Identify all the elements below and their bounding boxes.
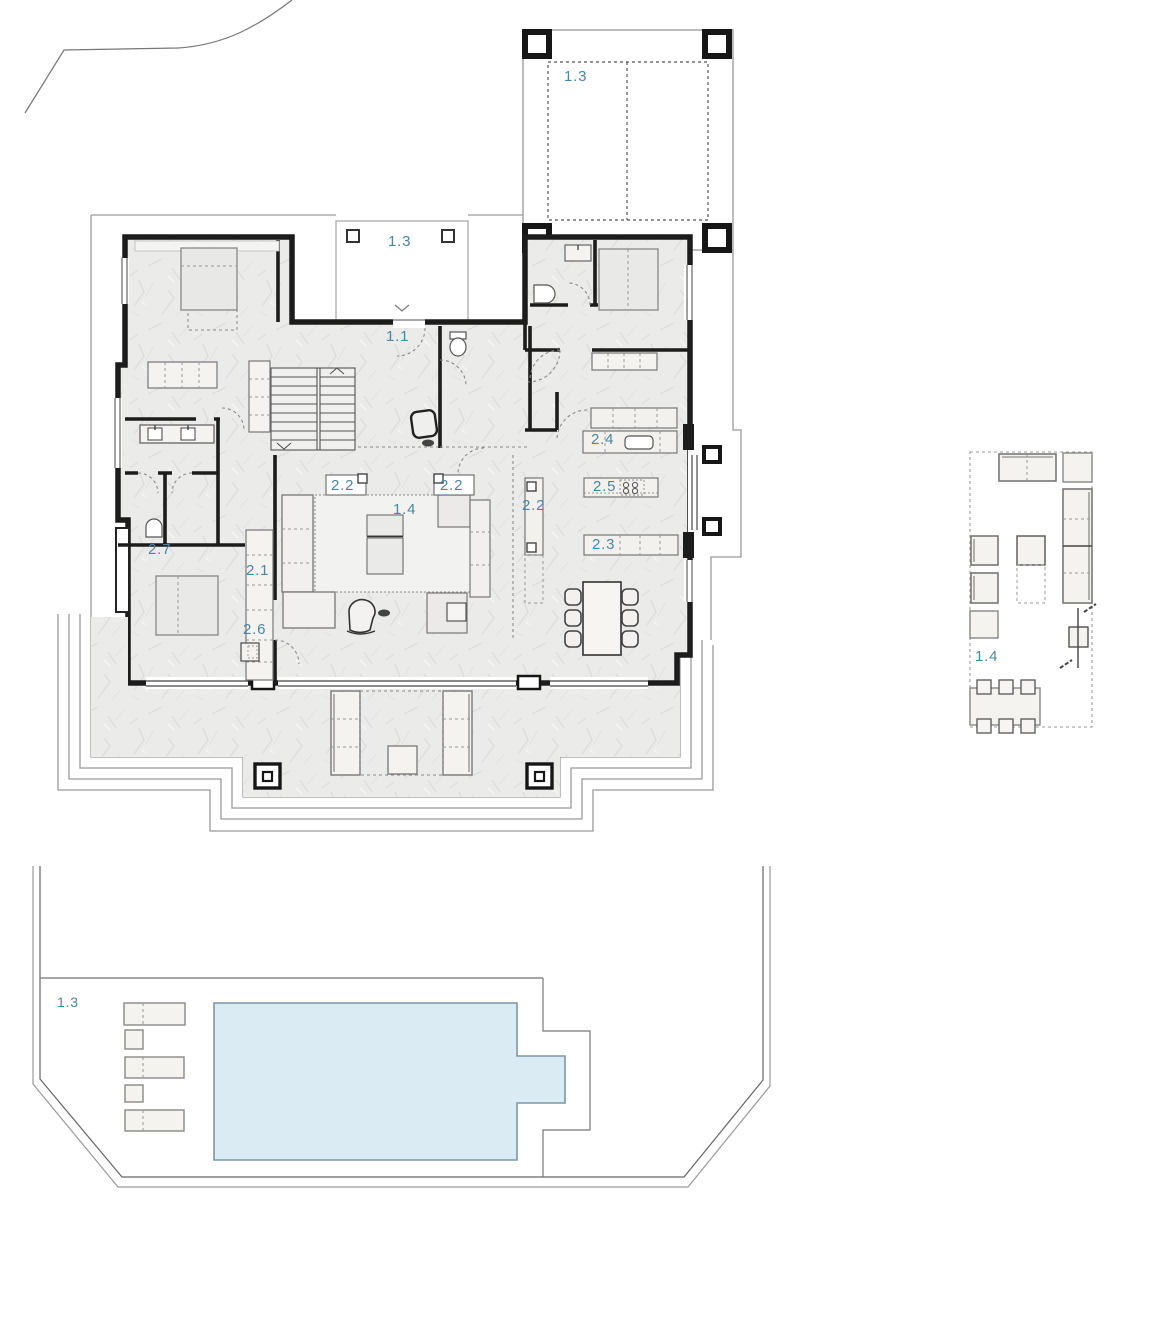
label-kitchen-low: 2.3 [592, 536, 615, 553]
label-detail-plan: 1.4 [975, 648, 998, 665]
sink [625, 436, 653, 449]
label-pool-terrace: 1.3 [57, 994, 79, 1010]
sofa [282, 495, 313, 592]
label-entry-porch: 1.3 [388, 233, 411, 250]
label-bedroom-27: 2.7 [148, 541, 171, 558]
label-wardrobe-21: 2.1 [246, 562, 269, 579]
outdoor-sofa [331, 691, 360, 775]
label-kitchen-counter: 2.4 [591, 431, 614, 448]
label-side-unit-26: 2.6 [243, 621, 266, 638]
dining-table [583, 582, 621, 655]
label-kitchen-unit: 2.2 [522, 497, 545, 514]
label-entry-hall: 1.1 [386, 328, 409, 345]
sofa [283, 592, 335, 628]
dining-set [565, 582, 638, 655]
desk-chair [410, 409, 437, 438]
swimming-pool [214, 1003, 565, 1160]
bed [181, 248, 237, 310]
label-upper-terrace: 1.3 [564, 68, 587, 85]
label-kitchen-island: 2.5 [593, 478, 616, 495]
toilet [534, 285, 555, 303]
umbrella [1060, 604, 1096, 668]
armchair [349, 600, 375, 633]
staircase [271, 368, 355, 450]
sun-loungers [124, 1003, 185, 1131]
toilet [146, 519, 162, 537]
living-room [282, 474, 490, 634]
label-living-room: 1.4 [393, 501, 416, 518]
furniture-detail-plan [970, 452, 1096, 733]
small-object [378, 610, 390, 617]
site-boundary-curve [25, 0, 292, 113]
floorplan-drawing [0, 0, 1172, 1338]
wardrobe [249, 361, 270, 432]
table [1017, 536, 1045, 565]
bay-window [683, 424, 720, 558]
upper-terrace [523, 30, 733, 250]
sideboard [470, 500, 490, 597]
pool-garden [33, 866, 770, 1187]
armchair [971, 573, 998, 603]
label-cabinet-right: 2.2 [440, 477, 463, 494]
outdoor-table [388, 746, 417, 774]
bed [156, 576, 218, 635]
outdoor-sofa [443, 691, 472, 775]
armchair [971, 536, 998, 565]
floorplan-sheet: { "drawing": { "labels": { "upper_terrac… [0, 0, 1172, 1338]
label-cabinet-left: 2.2 [331, 477, 354, 494]
coffee-table [367, 538, 403, 574]
small-object [422, 440, 434, 447]
